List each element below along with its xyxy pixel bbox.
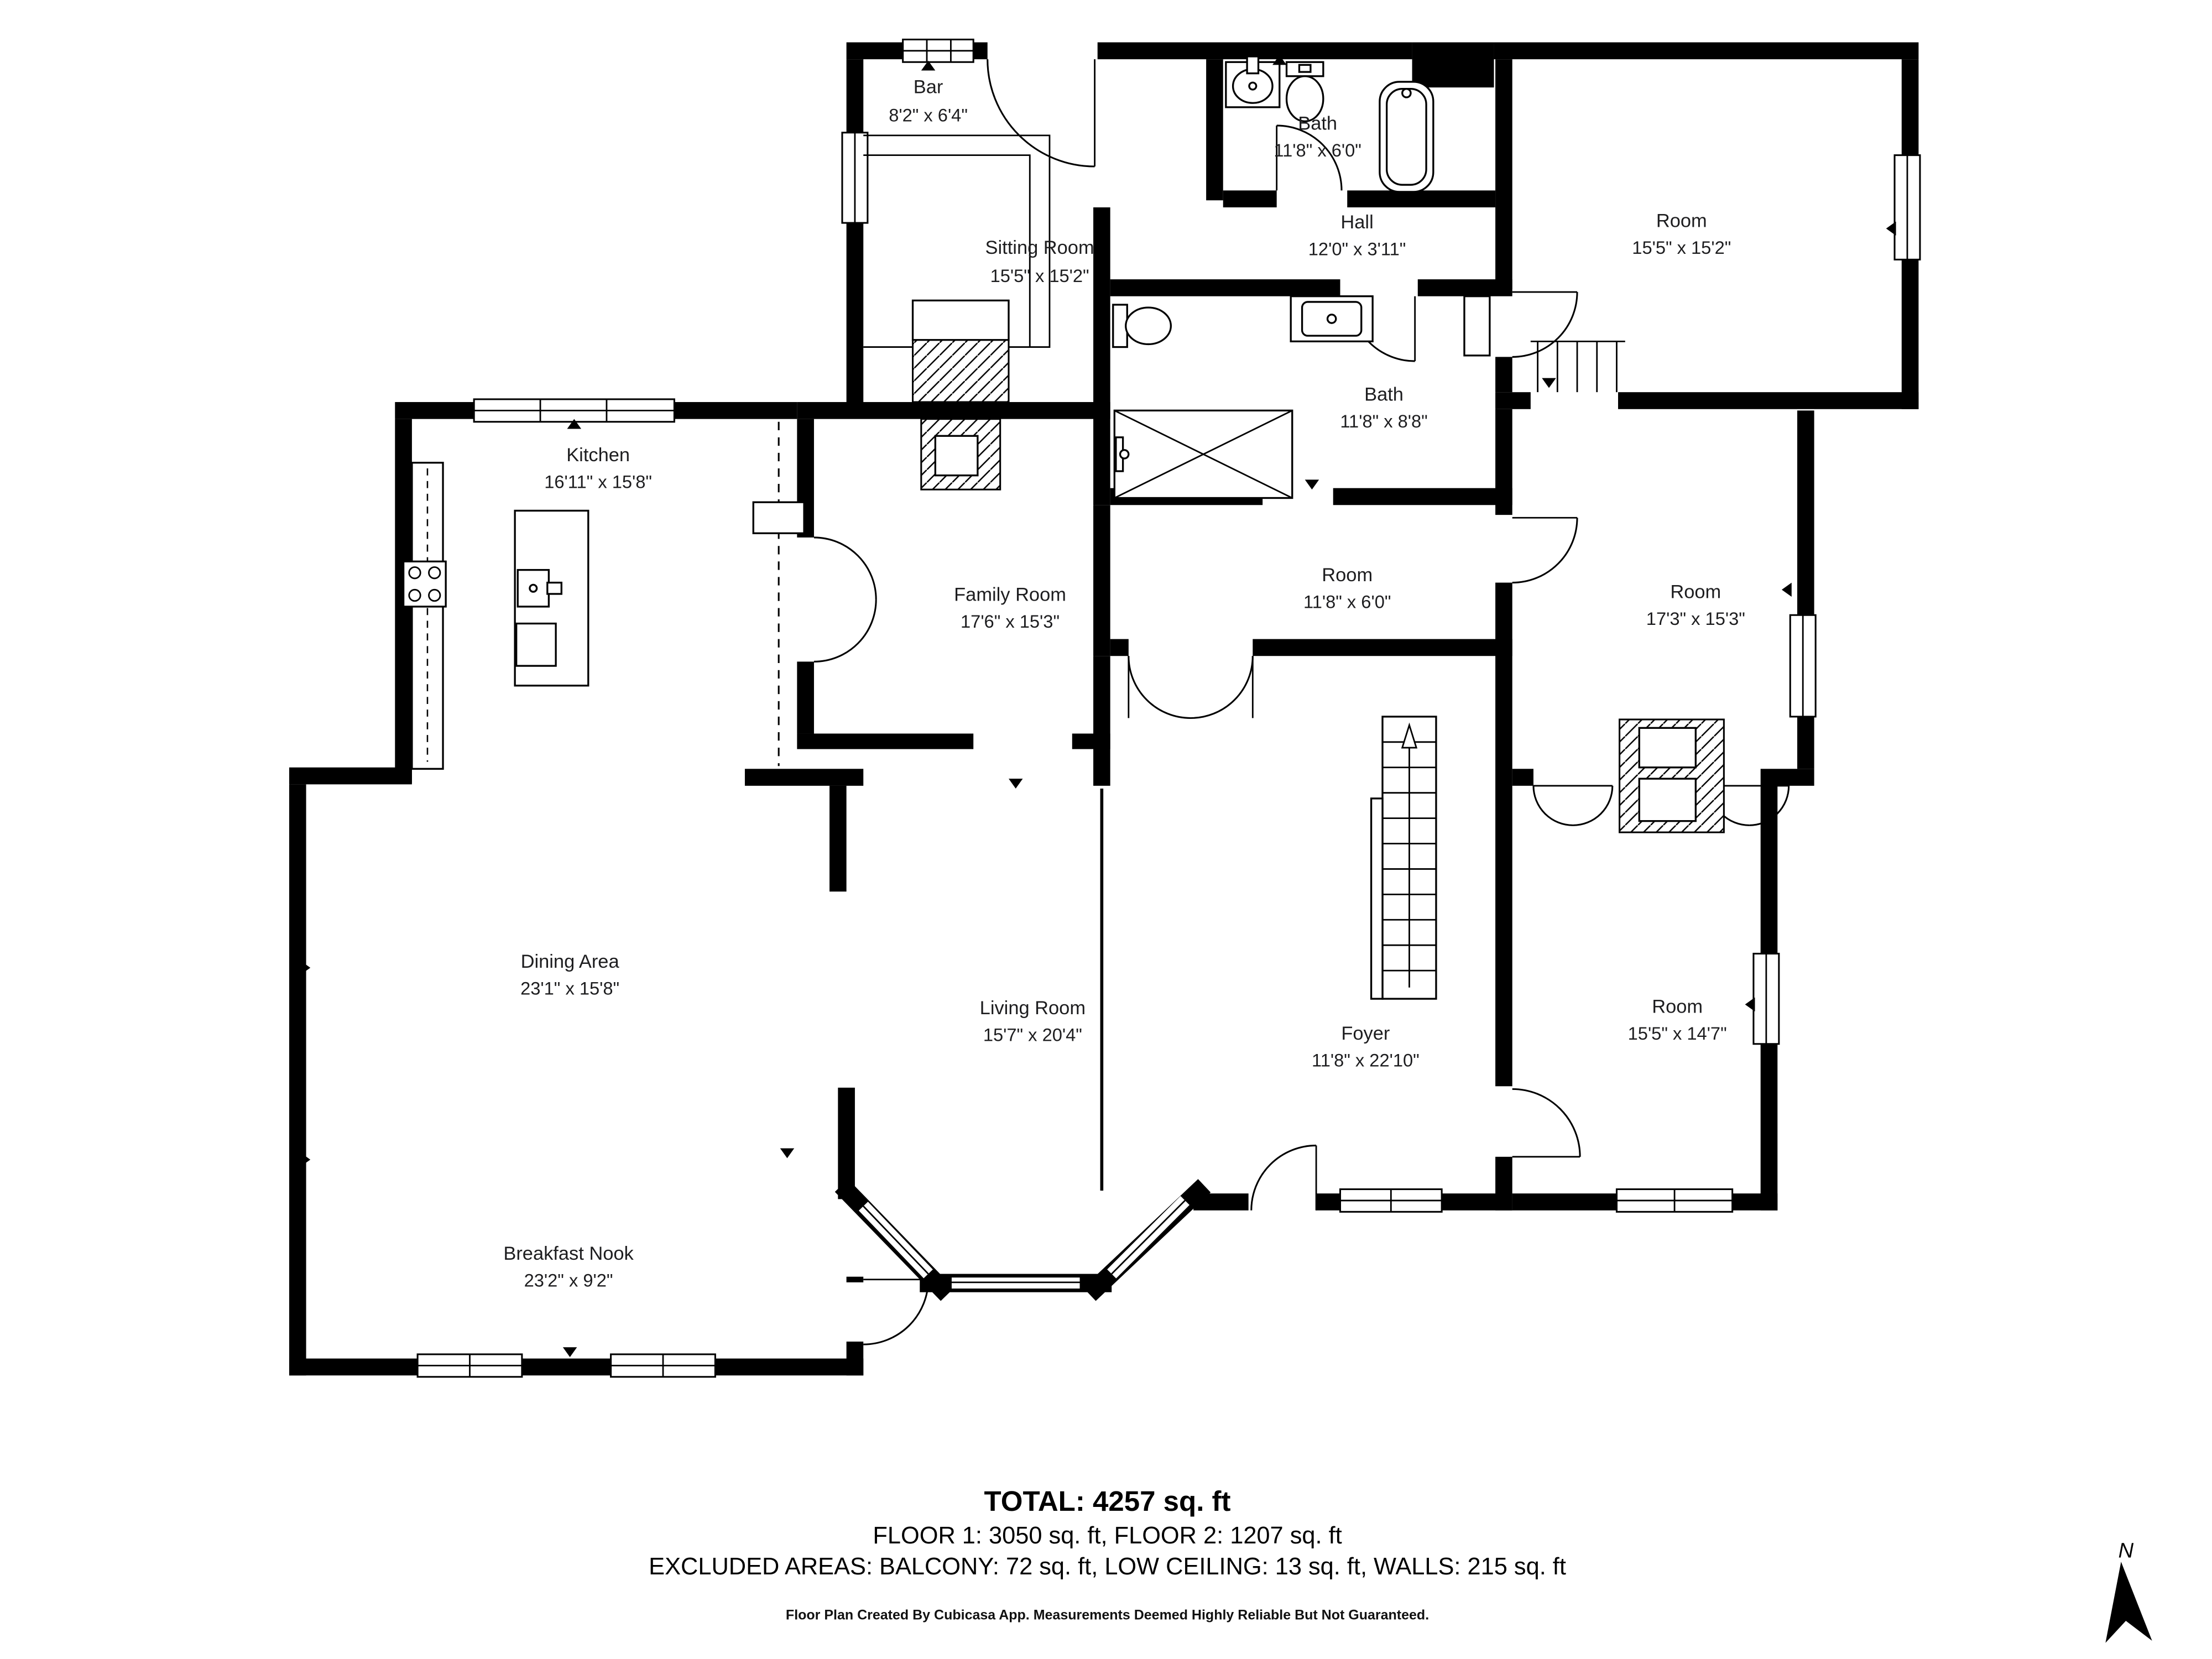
plan-geometry: Bar [914,76,943,97]
plan-geometry: 11'8" x 6'0" [1274,140,1361,160]
plan-geometry [1299,65,1310,72]
door-icon [863,1280,928,1344]
plan-geometry [1120,450,1129,458]
room-label-breakfast-nook: Breakfast Nook23'2" x 9'2" [503,1243,634,1290]
plan-geometry [395,402,474,419]
kitchen-cabinet [753,502,804,533]
plan-geometry: Bath [1298,113,1337,134]
plan-geometry [797,402,1110,419]
plan-geometry [1009,779,1023,789]
plan-geometry: 17'3" x 15'3" [1646,608,1745,629]
window-icon [1616,1190,1732,1212]
window-icon [1790,615,1815,717]
plan-geometry [780,1149,795,1159]
plan-geometry [1495,392,1531,409]
plan-geometry [1618,392,1918,409]
window-icon [418,1354,522,1377]
plan-geometry [1223,190,1277,207]
summary-block: TOTAL: 4257 sq. ft FLOOR 1: 3050 sq. ft,… [649,1485,1566,1623]
plan-geometry [547,583,562,594]
bathtub-icon [1380,82,1433,192]
plan-geometry [1745,998,1755,1012]
room-label-foyer: Foyer11'8" x 22'10" [1312,1023,1420,1070]
window-icon [863,1206,928,1274]
room-label-family-room: Family Room17'6" x 15'3" [954,585,1066,632]
plan-geometry: 16'11" x 15'8" [544,472,652,492]
plan-geometry [563,1347,577,1357]
plan-geometry [935,436,978,475]
plan-geometry: 11'8" x 22'10" [1312,1050,1420,1071]
plan-geometry [847,1342,864,1375]
plan-geometry [1495,409,1512,515]
plan-geometry: Living Room [980,998,1086,1019]
plan-geometry [1761,1041,1778,1211]
plan-geometry [797,734,973,749]
plan-geometry [863,1280,928,1344]
plan-geometry [830,786,847,891]
room-label-kitchen: Kitchen16'11" x 15'8" [544,445,652,492]
plan-geometry: Family Room [954,585,1066,606]
floor-plan: Bar8'2" x 6'4" Bath11'8" x 6'0" Sitting … [0,0,2212,1659]
plan-geometry [1494,43,1919,60]
sink-icon [1226,56,1280,107]
room-label-room-top-right: Room15'5" x 15'2" [1632,211,1731,258]
plan-geometry [1305,479,1319,489]
plan-geometry: 15'5" x 14'7" [1628,1023,1727,1044]
plan-geometry [1129,656,1191,718]
plan-geometry: Foyer [1341,1023,1390,1044]
plan-geometry: 8'2" x 6'4" [889,105,968,125]
door-icon [1512,1089,1580,1156]
plan-geometry [1112,1201,1185,1274]
plan-geometry [797,661,814,733]
plan-geometry [1730,1193,1778,1211]
stove-icon [404,561,446,607]
room-label-room-mid-right: Room17'3" x 15'3" [1646,582,1745,629]
plan-geometry [1512,518,1577,582]
plan-geometry: Dining Area [521,951,620,972]
plan-geometry [289,784,306,1375]
plan-geometry [1126,307,1171,344]
plan-geometry [1533,786,1573,825]
plan-geometry [404,561,446,607]
plan-geometry [1249,82,1256,90]
plan-geometry [745,769,863,786]
plan-geometry [1782,583,1792,597]
plan-geometry [1464,296,1490,356]
plan-geometry [1333,488,1512,505]
plan-geometry [1761,769,1814,786]
double-door-icon [1129,656,1253,718]
door-icon [1512,518,1577,582]
plan-geometry: 11'8" x 6'0" [1303,591,1391,612]
plan-geometry [1639,728,1695,767]
window-icon [1754,953,1779,1044]
window-icon [1340,1190,1442,1212]
plan-geometry [1251,1145,1316,1210]
stairs-icon [1371,717,1436,999]
plan-geometry [1639,779,1695,821]
plan-geometry [1191,656,1253,718]
window-icon [951,1277,1081,1290]
plan-geometry [2097,1559,2152,1646]
window-icon [842,133,868,223]
plan-geometry [1093,656,1110,786]
plan-geometry: 12'0" x 3'11" [1308,239,1406,259]
disclaimer: Floor Plan Created By Cubicasa App. Meas… [786,1608,1429,1623]
plan-geometry [1512,769,1533,786]
room-label-bath-middle: Bath11'8" x 8'8" [1340,384,1427,431]
plan-geometry [814,599,876,661]
door-icon [988,59,1095,166]
compass-north-icon: N [2097,1538,2152,1646]
room-label-dining-area: Dining Area23'1" x 15'8" [520,951,619,998]
sink-icon [1291,296,1373,342]
plan-geometry [674,402,797,419]
plan-geometry [289,768,412,785]
toilet-icon [1287,62,1323,121]
plan-geometry [1347,190,1495,207]
plan-geometry [1371,799,1383,999]
plan-geometry [530,585,537,592]
plan-geometry [1316,1193,1343,1211]
plan-geometry [1412,43,1494,88]
plan-geometry [1093,505,1110,656]
plan-geometry [1495,583,1512,1087]
cabinet [1464,296,1490,356]
plan-geometry [1328,315,1336,323]
plan-geometry: Room [1670,582,1721,603]
plan-geometry [1761,786,1778,957]
plan-geometry [1206,59,1223,200]
door-icon [1251,1145,1316,1210]
plan-geometry [814,538,876,599]
plan-geometry: N [2119,1538,2134,1562]
plan-geometry: 15'5" x 15'2" [1632,237,1731,258]
total-area: TOTAL: 4257 sq. ft [984,1485,1231,1517]
room-label-hall: Hall12'0" x 3'11" [1308,212,1406,259]
fireplace-icon [913,300,1009,489]
bath-middle-fixtures [1113,296,1490,498]
plan-geometry [863,1206,928,1274]
window-icon [1112,1201,1185,1274]
plan-geometry [1797,717,1814,769]
excluded-areas: EXCLUDED AREAS: BALCONY: 72 sq. ft, LOW … [649,1553,1566,1580]
plan-geometry [519,1359,614,1376]
door-icon [1512,292,1577,357]
plan-geometry [1253,639,1512,656]
fireplace-icon [1620,719,1724,832]
toilet-icon [1113,305,1171,347]
plan-geometry [1093,207,1110,505]
plan-geometry: Kitchen [566,445,630,466]
window-icon [611,1354,716,1377]
plan-geometry [1072,734,1110,749]
plan-geometry [1573,786,1612,825]
plan-geometry: 17'6" x 15'3" [961,611,1060,632]
plan-geometry: Sitting Room [985,237,1094,258]
plan-geometry [1402,89,1411,97]
plan-geometry [1247,56,1258,74]
plan-geometry: 23'1" x 15'8" [520,978,619,998]
plan-geometry [1439,1193,1512,1211]
plan-geometry [1512,1193,1620,1211]
plan-geometry: 11'8" x 8'8" [1340,411,1427,431]
room-label-sitting-room: Sitting Room15'5" x 15'2" [985,237,1094,286]
plan-geometry [1387,89,1426,185]
plan-geometry [988,59,1095,166]
plan-geometry [913,300,1009,340]
plan-geometry: Room [1656,211,1707,232]
plan-geometry [1495,59,1512,289]
plan-geometry [1110,639,1129,656]
plan-geometry [1495,357,1512,392]
fixtures [404,56,1724,1191]
plan-geometry [1886,222,1896,236]
plan-geometry [847,59,864,406]
floor-areas: FLOOR 1: 3050 sq. ft, FLOOR 2: 1207 sq. … [873,1522,1342,1549]
plan-geometry: Breakfast Nook [503,1243,634,1264]
plan-geometry [1797,410,1814,618]
plan-geometry: Room [1322,565,1373,586]
room-label-living-room: Living Room15'7" x 20'4" [980,998,1086,1045]
kitchen-island-icon [515,510,588,685]
room-label-room-small: Room11'8" x 6'0" [1303,565,1391,612]
plan-geometry [847,1277,864,1282]
plan-geometry [517,624,556,666]
room-label-room-bottom-right: Room15'5" x 14'7" [1628,997,1727,1044]
plan-geometry [1512,1089,1580,1156]
double-door-icon [814,538,876,661]
plan-geometry [1512,292,1577,357]
plan-geometry [1110,279,1340,296]
plan-geometry: 15'7" x 20'4" [983,1025,1082,1045]
plan-geometry: 23'2" x 9'2" [524,1270,613,1291]
window-icon [1895,155,1920,260]
plan-geometry: 15'5" x 15'2" [990,265,1089,286]
plan-geometry: Hall [1340,212,1373,233]
window-icon [903,39,974,62]
shower-icon [1114,410,1292,498]
plan-geometry: Room [1652,997,1703,1018]
window-icon [474,399,674,422]
room-label-bath-upper: Bath11'8" x 6'0" [1274,113,1361,160]
plan-geometry: Bath [1364,384,1404,405]
room-label-bar: Bar8'2" x 6'4" [889,76,968,125]
plan-geometry [913,340,1009,402]
plan-geometry [289,1359,420,1376]
plan-geometry [1542,378,1556,388]
plan-geometry [712,1359,863,1376]
double-door-icon [1533,786,1613,825]
